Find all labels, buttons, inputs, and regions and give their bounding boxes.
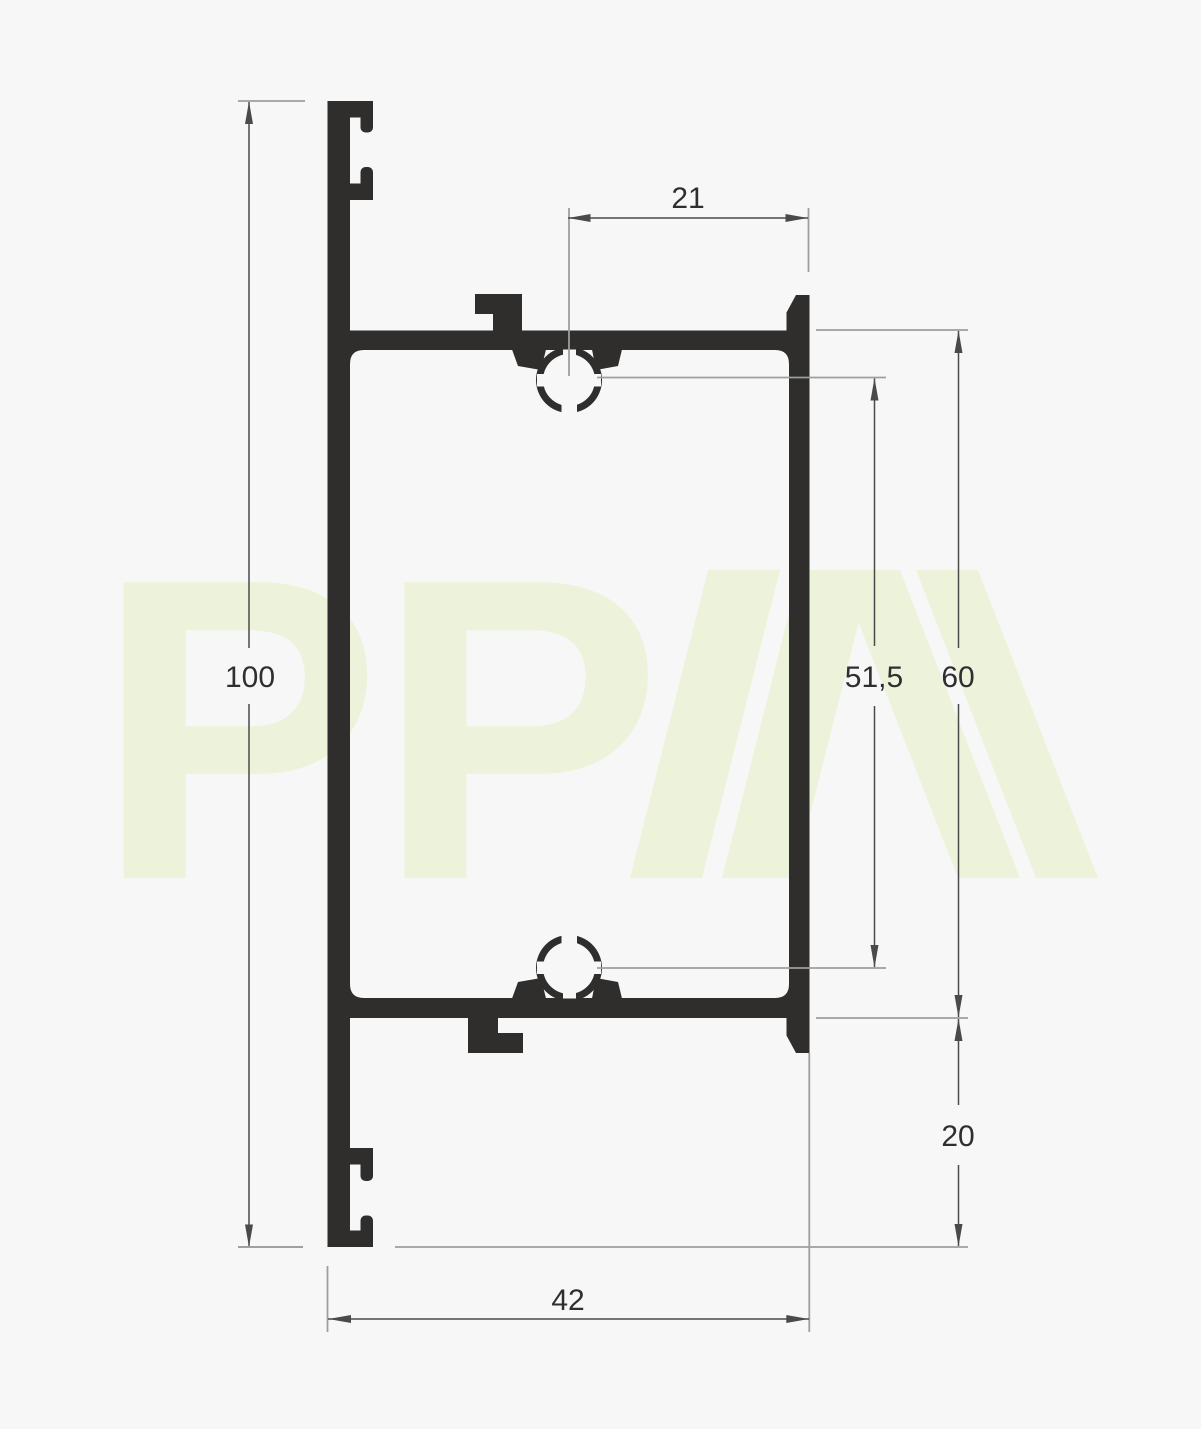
- dim-20-arrow-up: [955, 1019, 963, 1042]
- dim-21-arrow-left: [568, 214, 591, 222]
- hook-arm: [475, 294, 522, 314]
- dim-42-arrow-left: [329, 1315, 352, 1323]
- watermark-pp-text: PP: [95, 490, 657, 970]
- hook-arm: [468, 1033, 523, 1053]
- clip-upper-tooth: [361, 101, 374, 133]
- dim-20-arrow-down: [955, 1224, 963, 1247]
- dimension-overall-width: 42: [328, 1053, 810, 1332]
- dim-label-100: 100: [225, 661, 275, 694]
- accessory-groove-clip: [350, 101, 373, 200]
- screw-boss: [512, 347, 622, 414]
- dim-42-arrow-right: [786, 1315, 809, 1323]
- dim-label-21: 21: [671, 182, 704, 215]
- glazing-hook-bottom: [468, 1017, 523, 1053]
- dim-label-51-5: 51,5: [845, 661, 903, 694]
- dim-515-arrow-up: [871, 378, 879, 401]
- glazing-hook-top: [475, 294, 522, 331]
- dim-label-60: 60: [941, 661, 974, 694]
- dim-100-arrow-down: [245, 1225, 253, 1248]
- boss-left-notch: [537, 374, 548, 387]
- boss-bottom-gap: [562, 401, 578, 414]
- ppa-logo-watermark: PP: [95, 490, 1098, 970]
- dim-100-arrow-up: [245, 102, 253, 125]
- dim-60-arrow-down: [955, 995, 963, 1018]
- gasket-lip: [787, 295, 810, 331]
- dim-21-arrow-right: [786, 214, 809, 222]
- profile-drawing-svg: PP: [0, 0, 1201, 1429]
- dim-60-arrow-up: [955, 331, 963, 354]
- profile-bottom-details: [350, 935, 810, 1248]
- dim-515-arrow-down: [871, 945, 879, 968]
- dim-label-42: 42: [551, 1284, 584, 1317]
- boss-right-notch: [591, 374, 602, 387]
- clip-lower-arm: [350, 184, 373, 201]
- dim-label-20: 20: [941, 1120, 974, 1153]
- dimension-bottom-flange: 20: [941, 1019, 974, 1247]
- technical-drawing-page: PP: [0, 0, 1201, 1429]
- profile-top-details: [350, 101, 810, 414]
